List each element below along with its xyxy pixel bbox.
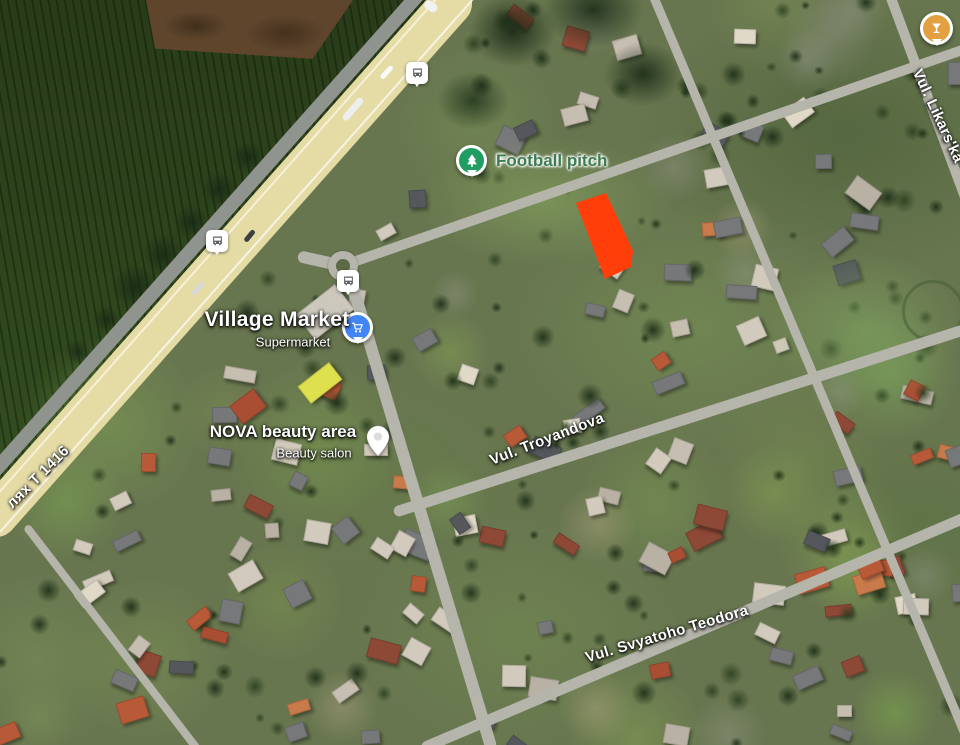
shopping-cart-icon — [349, 319, 366, 336]
satellite-map[interactable]: Football pitch Village Market Supermarke… — [0, 0, 960, 745]
street — [334, 43, 960, 272]
park-marker[interactable] — [456, 145, 487, 176]
bus-icon — [341, 274, 356, 289]
village-market-title[interactable]: Village Market — [204, 308, 349, 332]
beauty-area-title[interactable]: NOVA beauty area — [210, 422, 356, 442]
street-troyandova — [392, 323, 960, 517]
bus-stop-marker[interactable] — [337, 270, 359, 292]
bus-stop-marker[interactable] — [206, 230, 228, 252]
cocktail-icon — [928, 20, 945, 37]
beauty-area-subtitle: Beauty salon — [276, 446, 351, 461]
tree-icon — [463, 152, 481, 170]
place-pin-icon — [366, 425, 390, 457]
bus-stop-marker[interactable] — [406, 62, 428, 84]
roads-layer — [0, 0, 960, 745]
lane — [23, 524, 201, 745]
beauty-salon-marker[interactable] — [366, 425, 390, 462]
bus-icon — [210, 234, 225, 249]
bar-marker[interactable] — [920, 12, 953, 45]
football-pitch-label[interactable]: Football pitch — [496, 151, 607, 171]
village-market-subtitle: Supermarket — [256, 335, 330, 350]
bus-icon — [410, 66, 425, 81]
